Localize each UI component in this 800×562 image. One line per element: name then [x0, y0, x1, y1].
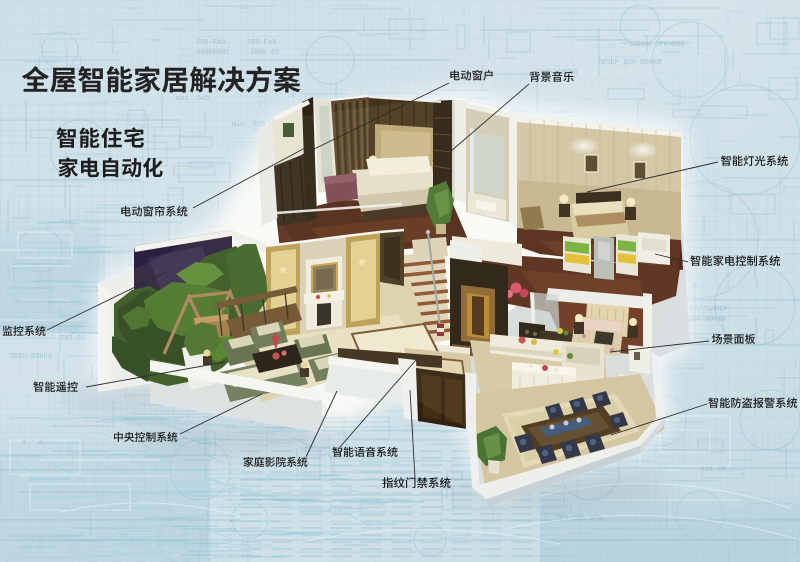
svg-text:БОНКИ ЭРИЧИКИ: БОНКИ ЭРИЧИКИ — [630, 41, 685, 49]
svg-text:ФАРЛАММЕР: ФАРЛАММЕР — [690, 306, 728, 314]
svg-text:ДЛЯ БОНКИ: ДЛЯ БОНКИ — [688, 316, 726, 324]
svg-text:ПЕЧЕР ДЛЯ БОНКИ: ПЕЧЕР ДЛЯ БОНКИ — [598, 59, 661, 67]
svg-text:J00h 60: J00h 60 — [250, 49, 279, 57]
svg-text:ПЕЧ ОЗЪ АТЬ: ПЕЧ ОЗЪ АТЬ — [556, 515, 602, 523]
svg-text:ЗООН-БОНКА: ЗООН-БОНКА — [10, 353, 53, 361]
svg-text:ТИП ОЗ: ТИП ОЗ — [60, 335, 85, 343]
svg-text:200-Fa5: 200-Fa5 — [247, 39, 276, 47]
svg-text:max. 545: max. 545 — [176, 95, 210, 103]
svg-text:200-Fa5: 200-Fa5 — [196, 39, 225, 47]
svg-text:J00hБ0ИC: J00hБ0ИC — [196, 49, 230, 57]
